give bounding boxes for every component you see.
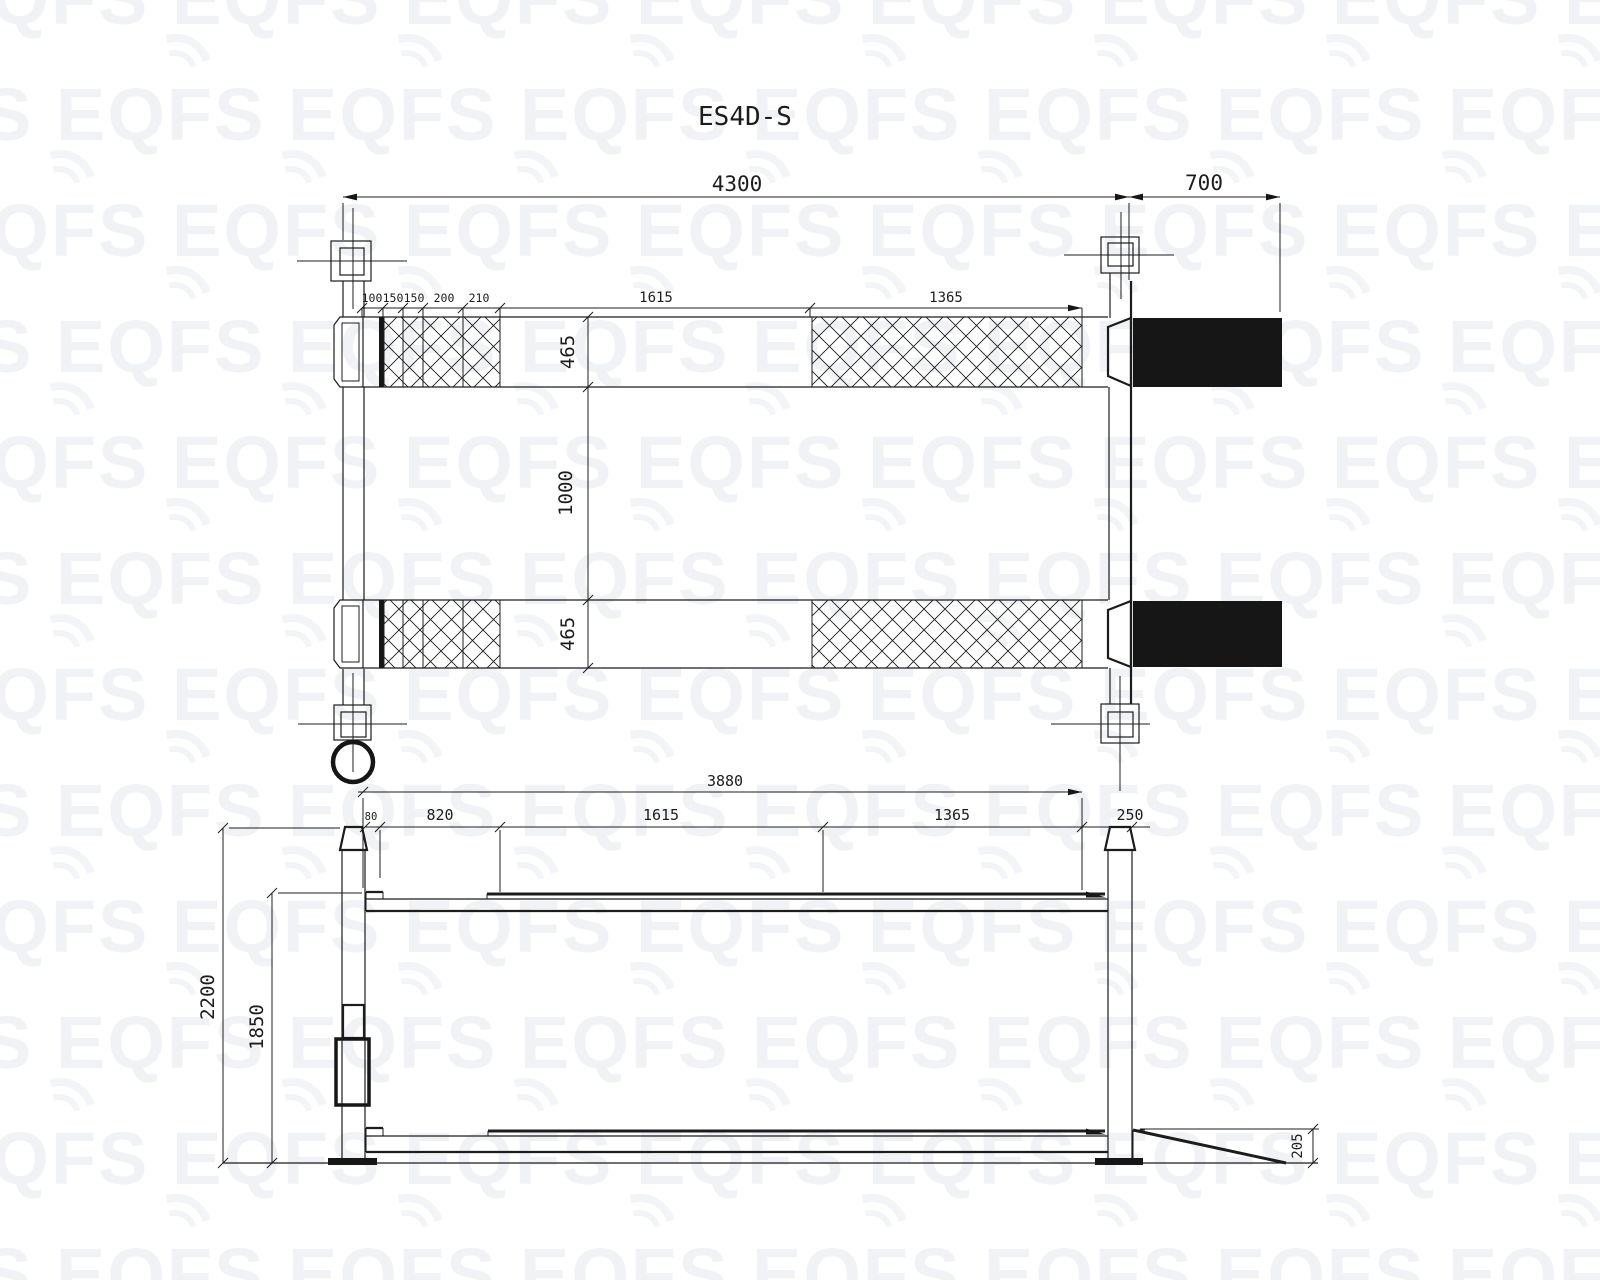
dimension-overall-length: 4300	[343, 172, 1129, 280]
runway-plan-bottom	[334, 600, 1131, 668]
base-plate-right	[1095, 1158, 1143, 1165]
dimension-chain-side-view: 80 820 1615 1365 250	[360, 806, 1150, 892]
column-left	[336, 827, 369, 1160]
runway-plan-top	[334, 317, 1131, 387]
power-unit-box	[336, 1039, 369, 1105]
dim-seg-1615: 1615	[639, 290, 673, 306]
platform-raised	[366, 892, 1108, 912]
top-view: 4300 700	[297, 171, 1282, 791]
dim-seg-150a: 150	[383, 291, 404, 305]
side-view: 3880 80 820 1615 1365 250	[197, 772, 1319, 1168]
dim-seg-80: 80	[365, 811, 378, 823]
drive-on-ramp-bottom	[1133, 601, 1282, 667]
drawing-title: ES4D-S	[698, 102, 792, 132]
technical-drawing: ES4D-S 4300 700	[0, 0, 1600, 1280]
post-top-right	[1064, 212, 1174, 318]
dimension-chain-top-view: 100 150 150 200 210 1615 1365	[357, 290, 1082, 317]
floor-and-bases	[223, 1158, 1318, 1165]
carriage-block	[343, 1005, 364, 1038]
ramp-hinge	[1108, 318, 1131, 386]
column-right	[1105, 827, 1135, 1160]
dimension-platform-length: 3880	[358, 772, 1082, 890]
tread-plate-hatch-right	[812, 317, 1082, 387]
post-bottom-left	[298, 669, 407, 782]
approach-wedge	[1133, 1130, 1286, 1163]
dim-rear-ramp-label: 700	[1185, 171, 1223, 195]
dim-1850-label: 1850	[246, 1004, 268, 1050]
dim-track-1000: 1000	[555, 470, 577, 516]
runway-end-bar	[379, 317, 384, 387]
dimension-overall-height: 2200	[197, 823, 340, 1168]
dimension-lift-height: 1850	[246, 888, 362, 1168]
post-bottom-right	[1051, 668, 1150, 791]
dimension-widths: 465 1000 465	[555, 312, 593, 673]
runway-end-bar	[379, 600, 384, 668]
tread-plate-hatch-right	[812, 600, 1082, 668]
dim-overall-length-label: 4300	[712, 172, 763, 196]
dim-seg-1615: 1615	[643, 806, 679, 824]
dim-width-465-top: 465	[557, 335, 579, 369]
dim-seg-200: 200	[434, 291, 455, 305]
dim-seg-1365: 1365	[929, 290, 963, 306]
tread-plate-hatch-left	[384, 317, 500, 387]
platform-lowered	[366, 1128, 1108, 1152]
base-plate-left	[328, 1158, 377, 1165]
ramp-hinge	[1108, 601, 1131, 667]
drive-on-ramp-top	[1133, 318, 1282, 387]
dim-width-465-bottom: 465	[557, 617, 579, 651]
dim-seg-100: 100	[362, 291, 383, 305]
dim-platform-length-label: 3880	[707, 772, 743, 790]
dim-2200-label: 2200	[197, 974, 219, 1020]
dim-205-label: 205	[1290, 1133, 1306, 1158]
dim-seg-210: 210	[469, 291, 490, 305]
dim-seg-820: 820	[426, 806, 453, 824]
dim-seg-250: 250	[1116, 806, 1143, 824]
drawing-sheet: EQFSEQFSEQFSEQFSEQFSEQFSEQFSEQFSEQFSEQFS…	[0, 0, 1600, 1280]
dimension-rear-ramp: 700	[1129, 171, 1280, 312]
tread-plate-hatch-left	[384, 600, 500, 668]
dimension-ramp-height: 205	[1140, 1124, 1319, 1168]
dim-seg-150b: 150	[404, 291, 425, 305]
dim-seg-1365: 1365	[934, 806, 970, 824]
